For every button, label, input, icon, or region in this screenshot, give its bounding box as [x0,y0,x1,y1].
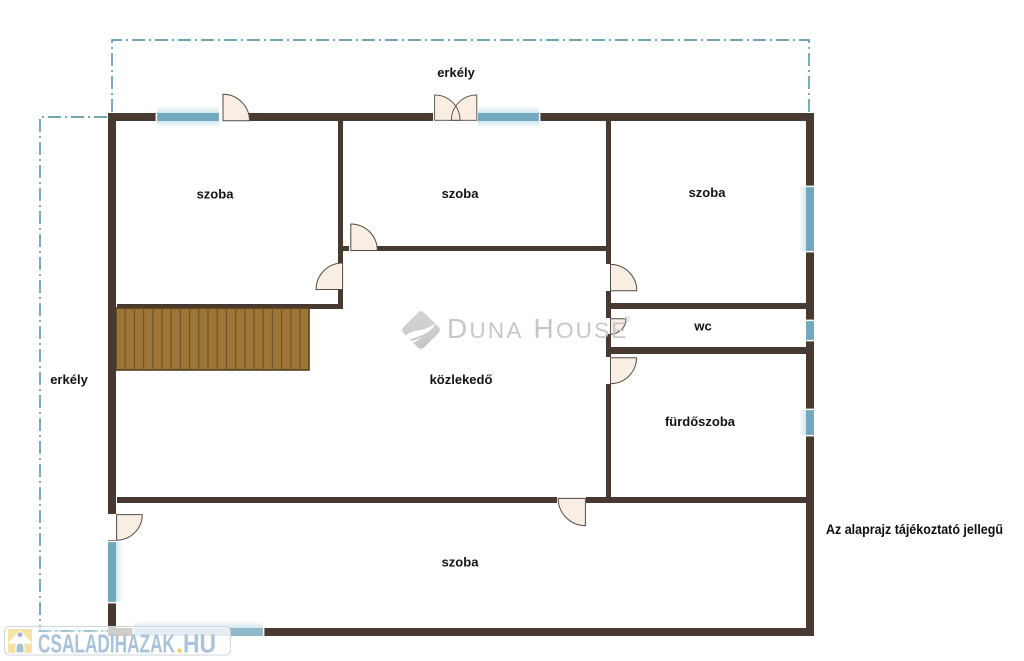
svg-text:HU: HU [183,629,216,659]
svg-text:wc: wc [693,319,711,334]
svg-text:fürdőszoba: fürdőszoba [665,414,736,429]
svg-text:szoba: szoba [442,555,480,570]
svg-text:Az alaprajz tájékoztató jelleg: Az alaprajz tájékoztató jellegű [826,522,1003,537]
svg-text:DUNA HOUSE: DUNA HOUSE [447,313,629,344]
svg-text:erkély: erkély [50,372,88,387]
svg-text:szoba: szoba [197,187,235,202]
svg-text:®: ® [624,314,631,324]
svg-text:közlekedő: közlekedő [430,372,493,387]
svg-text:szoba: szoba [442,186,480,201]
svg-text:erkély: erkély [437,65,475,80]
svg-text:szoba: szoba [689,185,727,200]
svg-text:CSALADIHAZAK: CSALADIHAZAK [38,629,175,659]
